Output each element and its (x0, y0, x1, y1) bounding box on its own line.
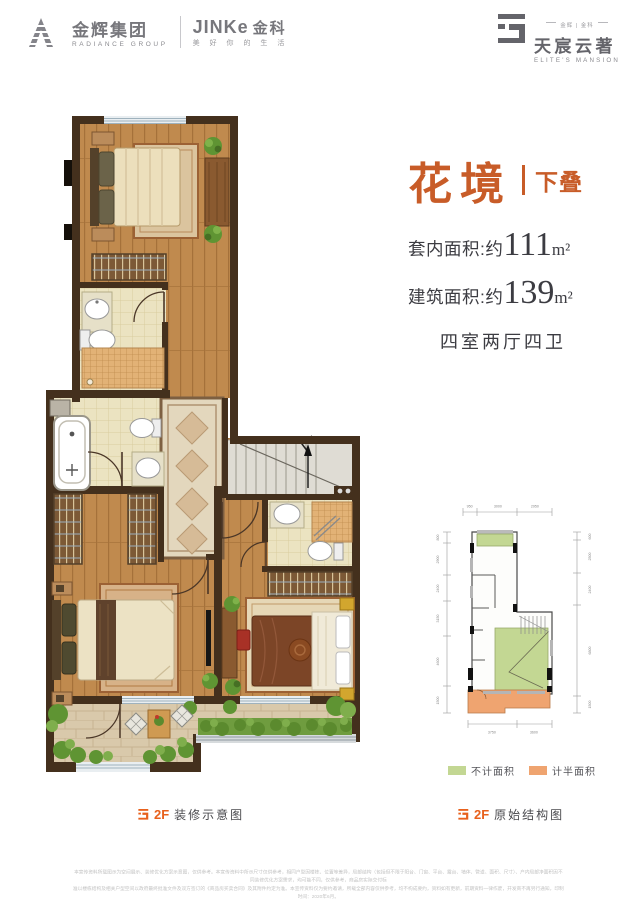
structural-diagram: 950 3000 2950 800 2900 2400 3150 4600 15… (425, 500, 625, 770)
plant-icon (202, 673, 218, 689)
dim-label: 2500 (588, 552, 592, 560)
dim-label: 6800 (588, 646, 592, 654)
dim-label: 2400 (436, 584, 440, 592)
legend: 不计面积 计半面积 (448, 763, 596, 778)
disclaimer-line1: 本宣传资料所载图示为空间展示、装修优化方案示意图，仅供参考。本宣传资料中所示尺寸… (72, 868, 565, 885)
dim-label: 2950 (531, 504, 539, 508)
legend-no-area: 不计面积 (448, 763, 515, 778)
plant-icon (204, 137, 222, 155)
dim-label: 600 (588, 533, 592, 539)
dim-label: 3150 (436, 614, 440, 622)
dim-label: 1500 (588, 700, 592, 708)
dim-label: 4600 (436, 657, 440, 665)
caption-logo-icon (138, 809, 149, 820)
struct-caption-floor: 2F (474, 807, 489, 822)
legend-no-area-label: 不计面积 (471, 763, 515, 778)
plant-icon (225, 679, 241, 695)
staircase (226, 436, 356, 498)
legend-orange-swatch (529, 766, 547, 775)
main-plan-caption: 2F 装修示意图 (138, 806, 244, 823)
dim-label: 2400 (588, 585, 592, 593)
dim-label: 1500 (436, 696, 440, 704)
plant-icon (224, 596, 240, 612)
dim-label: 3000 (494, 504, 502, 508)
caption-logo-icon (458, 809, 469, 820)
disclaimer-line2: 准以楼栋结构及相关户型空间以政府最终批准文件及双方签订的《商品房买卖合同》及其附… (72, 885, 565, 902)
structural-plan-caption: 2F 原始结构图 (458, 806, 564, 823)
struct-caption-text: 原始结构图 (494, 806, 564, 823)
plant-icon (204, 225, 222, 243)
main-caption-floor: 2F (154, 807, 169, 822)
poster-page: 金辉集团 RADIANCE GROUP JINKe 金科 美 好 你 的 生 活… (0, 0, 640, 920)
structural-diagram-graphic (425, 500, 625, 770)
dim-label: 800 (436, 534, 440, 540)
legend-green-swatch (448, 766, 466, 775)
dim-label: 950 (467, 504, 473, 508)
dim-label: 2900 (436, 555, 440, 563)
legend-half-area-label: 计半面积 (552, 763, 596, 778)
dim-label: 3750 (488, 730, 496, 734)
dim-label: 3600 (530, 730, 538, 734)
disclaimer: 本宣传资料所载图示为空间展示、装修优化方案示意图，仅供参考。本宣传资料中所示尺寸… (72, 868, 565, 901)
legend-half-area: 计半面积 (529, 763, 596, 778)
main-floor-plan (0, 0, 640, 920)
main-caption-text: 装修示意图 (174, 806, 244, 823)
hallway-runner (161, 398, 223, 558)
